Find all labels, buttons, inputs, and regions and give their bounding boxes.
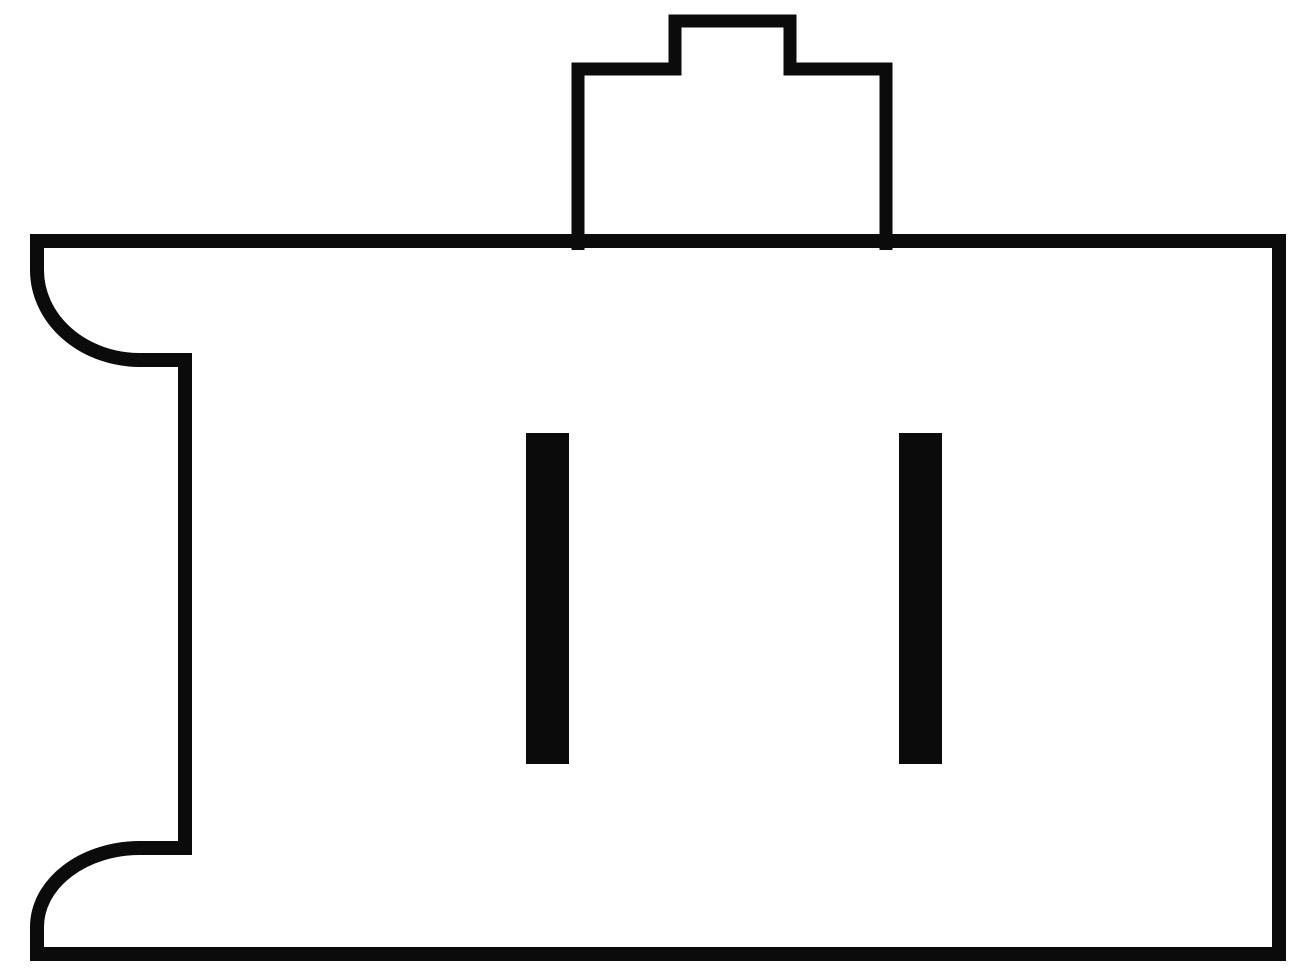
pin-group [526,433,942,764]
pin-2 [899,433,942,764]
connector-diagram [0,0,1300,977]
polarization-key-outline [578,21,886,250]
pin-1 [526,433,569,764]
connector-diagram-svg [0,0,1300,977]
connector-body-outline [37,241,1279,954]
